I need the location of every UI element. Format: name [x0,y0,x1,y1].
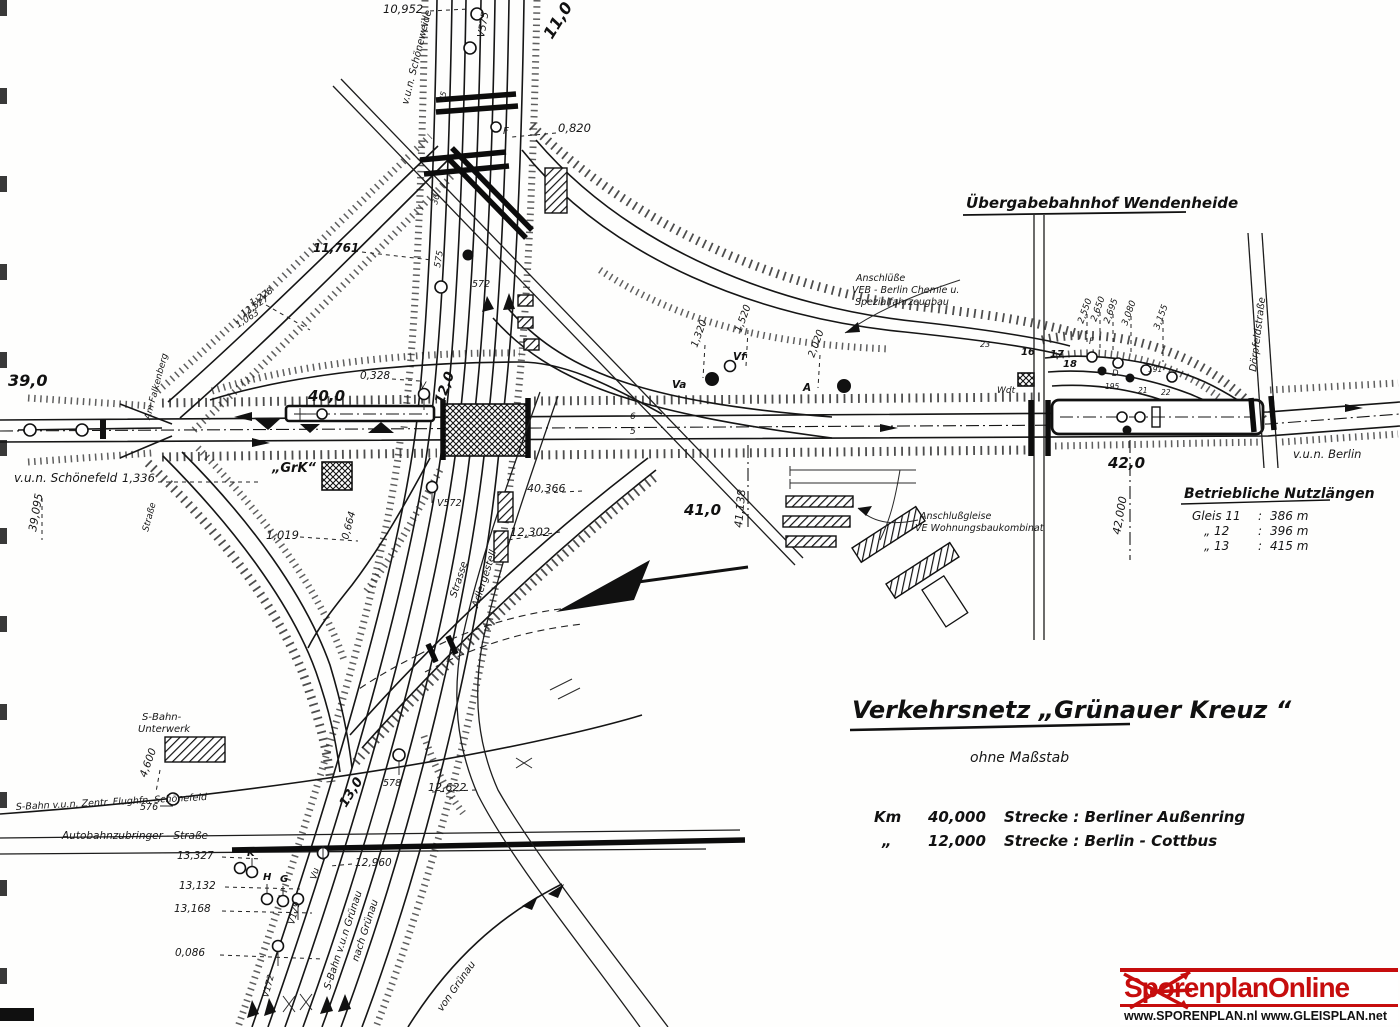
label-track18: 18 [1063,359,1077,370]
label-autobahnzubringer: Autobahnzubringer - Straße [61,830,208,842]
label-va-signal: Va [672,379,686,391]
strecke-2: Strecke : Berlin - Cottbus [1004,832,1217,850]
km-value-1: 40,000 [927,808,986,826]
label-3080: 3,080 [1120,299,1138,327]
label-unterwerk-1: S-Bahn- [142,712,182,723]
plan-title: Verkehrsnetz „Grünauer Kreuz “ [852,696,1292,724]
bridges [420,94,528,460]
label-22: 22 [1161,388,1171,397]
label-vun-schoeneweide: v.u.n. Schöneweide [400,9,434,106]
label-13168: 13,168 [174,903,211,915]
label-f-signal: F [503,126,509,137]
label-0664: 0,664 [340,510,358,541]
label-track17: 17 [1050,349,1064,360]
label-191: 191 [1148,365,1162,374]
nutzlaengen-row-len: 386 m [1270,509,1308,523]
label-a-signal: A [802,382,811,394]
label-1336: 1,336 [122,471,155,485]
label-12960: 12,960 [355,857,392,869]
label-39095: 39,095 [26,492,45,532]
label-v572: V572 [437,498,462,509]
nutzlaengen-heading: Betriebliche Nutzlängen [1184,486,1375,502]
label-v179: V179 [287,900,303,925]
label-12302: 12,302 [510,525,550,539]
nutzlaengen-sep: : [1258,539,1262,553]
label-10952: 10,952 [383,2,423,16]
sporenplan-logo: SporenplanOnline www.SPORENPLAN.nl www.G… [1120,968,1398,1025]
label-anschluesse-3: Spezialfahrzeugbau [855,297,949,308]
label-f2-signal: F [1089,337,1094,347]
label-13132: 13,132 [179,880,216,892]
label-1520: 1,520 [733,303,753,334]
nutzlaengen-sep: : [1258,509,1262,523]
label-0086: 0,086 [175,947,205,959]
track-plan-gruenauer-kreuz: 39,0 v.u.n. Schönefeld 1,336 39,095 Am F… [0,0,1400,1027]
label-doerpfeldstrasse: Dörpfeldstraße [1248,297,1268,373]
label-vu-signal: Vu [309,867,322,881]
label-572: 572 [472,279,490,290]
nutzlaengen-row-len: 396 m [1270,524,1308,538]
nutzlaengen-sep: : [1258,524,1262,538]
label-3155: 3,155 [1152,303,1170,331]
label-strasse-left: Straße [141,501,158,533]
label-track16: 16 [1021,347,1035,358]
label-anschlussgleise-1: Anschlußgleise [919,511,991,522]
label-v172: V172 [261,973,277,998]
label-anschluesse-2: VEB - Berlin Chemie u. [852,285,959,296]
label-km-39: 39,0 [8,371,47,390]
label-0820: 0,820 [558,121,591,135]
label-195: 195 [1105,382,1120,391]
label-unterwerk-2: Unterwerk [138,724,191,735]
label-track23: 23 [980,340,990,349]
scan-artifact-corner [0,1008,34,1021]
label-41138: 41,138 [732,489,748,528]
leader-lines [42,9,1163,959]
label-11761: 11,761 [313,241,359,255]
northwest-connector [158,136,662,430]
label-578: 578 [383,778,401,789]
label-am-falkenberg: Am Falkenberg [143,352,171,422]
label-30: 30 [430,193,441,205]
label-km-41: 41,0 [683,501,721,519]
nutzlaengen-row-gleis: „ 13 [1204,539,1229,553]
label-sbahn-schoenefeld: S-Bahn v.u.n. Zentr. Flughfn. Schönefeld [16,792,209,813]
wendenheide-station [1018,215,1264,640]
label-km-40: 40,0 [307,387,345,405]
label-wdt: Wdt [997,386,1016,396]
label-42000: 42,000 [1110,495,1129,535]
label-vf-signal: Vf [733,351,747,363]
plan-drawing: 39,0 v.u.n. Schönefeld 1,336 39,095 Am F… [0,0,1400,1027]
label-h-signal: H [263,872,272,883]
nutzlaengen-row-len: 415 m [1270,539,1308,553]
label-13327: 13,327 [177,850,214,862]
plan-subtitle: ohne Maßstab [970,750,1069,766]
label-k-signal: K [247,848,256,859]
nutzlaengen-row-gleis: Gleis 11 [1192,509,1241,523]
label-km-42: 42,0 [1107,454,1145,472]
northeast-connector [493,126,1082,438]
label-km-11: 11,0 [539,0,576,42]
km-ditto: „ [881,832,892,850]
label-4600: 4,600 [138,746,160,779]
label-576: 576 [140,802,158,813]
label-track5: 5 [630,427,636,437]
km-label: Km [874,808,901,826]
label-21: 21 [1138,386,1148,395]
label-anschluesse-1: Anschlüße [855,273,905,284]
label-v-signal: V [420,381,427,391]
km-value-2: 12,000 [928,832,986,850]
label-grk: „GrK“ [271,461,317,476]
label-1320: 1,320 [689,318,709,349]
label-vun-berlin: v.u.n. Berlin [1293,447,1361,461]
label-0328: 0,328 [360,370,390,382]
logo-crossing-icon [1120,970,1194,1012]
north-arrow [550,560,748,699]
strecke-1: Strecke : Berliner Außenring [1004,808,1245,826]
label-40366: 40,366 [527,482,566,495]
label-track6: 6 [630,412,636,422]
nutzlaengen-row-gleis: „ 12 [1204,524,1229,538]
label-12622: 12,622 [428,781,467,794]
label-von-gruenau: von Grünau [435,959,478,1013]
label-vun-schoenefeld: v.u.n. Schönefeld [14,471,118,485]
label-anschlussgleise-2: VE Wohnungsbaukombinat [915,523,1045,534]
wendenheide-heading: Übergabebahnhof Wendenheide [966,193,1238,212]
buildings-right-center [494,168,968,627]
label-g-signal: G [280,874,288,885]
label-1019: 1,019 [266,528,299,542]
label-d-signal: D [1112,369,1119,379]
diagonal-crossing-line [333,79,803,565]
